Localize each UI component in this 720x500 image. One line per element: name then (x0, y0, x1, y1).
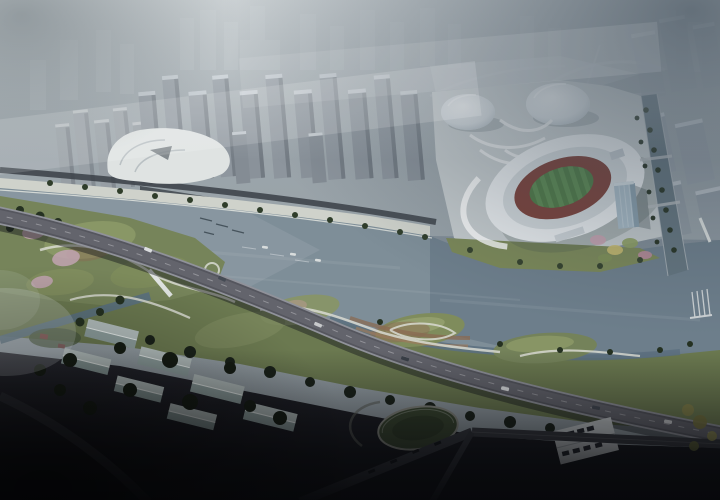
aerial-rendering (0, 0, 720, 500)
atmosphere (0, 0, 720, 500)
